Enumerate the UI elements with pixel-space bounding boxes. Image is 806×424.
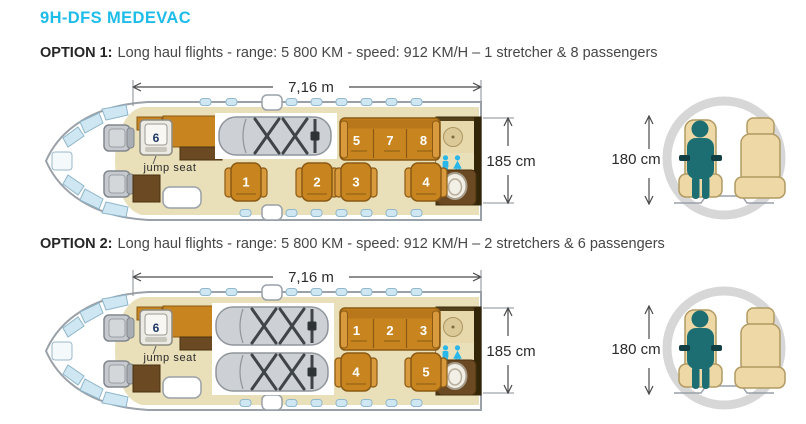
seat-number: 3 [352,175,359,190]
seat-number: 5 [422,365,429,380]
seat-number: 4 [422,175,430,190]
seat-number: 7 [386,133,393,148]
seat-number: 2 [386,323,393,338]
option-2-description: Long haul flights - range: 5 800 KM - sp… [118,236,665,252]
cabin-height-dimension-label: 185 cm [486,343,535,360]
cross-section-height-label: 180 cm [611,151,660,168]
option-2-heading: OPTION 2:Long haul flights - range: 5 80… [40,236,665,252]
medevac-configuration-diagram: 9H-DFS MEDEVAC OPTION 1:Long haul flight… [0,0,806,424]
stretcher [215,113,337,159]
aircraft-floorplan-option-1: 1 2 3 4 5 7 8 6 jump seat 7,16 m 185 cm [30,72,560,227]
seat-number: 8 [420,133,427,148]
fuselage-cross-section [645,101,785,215]
option-1-description: Long haul flights - range: 5 800 KM - sp… [118,45,658,61]
jump-seat-number: 6 [153,131,160,145]
seat-number: 3 [420,323,427,338]
cross-section-option-2: 180 cm [596,282,801,417]
seat-number: 1 [353,323,360,338]
jump-seat-label: jump seat [142,352,196,364]
fuselage-cross-section [645,291,785,405]
option-1-heading: OPTION 1:Long haul flights - range: 5 80… [40,45,658,61]
option-2-label: OPTION 2: [40,236,113,252]
option-1-label: OPTION 1: [40,45,113,61]
aircraft-floorplan-option-2: 4 5 1 2 3 6 jump seat 7,16 m 185 cm [30,262,560,417]
page-title: 9H-DFS MEDEVAC [40,9,191,28]
seat-number: 5 [353,133,360,148]
jump-seat-label: jump seat [142,162,196,174]
length-dimension-label: 7,16 m [288,269,334,286]
cabin-height-dimension-label: 185 cm [486,153,535,170]
length-dimension-label: 7,16 m [288,79,334,96]
seat-number: 4 [352,365,360,380]
stretcher [212,349,334,395]
jump-seat-number: 6 [153,321,160,335]
cross-section-height-label: 180 cm [611,341,660,358]
cross-section-option-1: 180 cm [596,92,801,227]
stretcher [212,303,334,349]
seat-number: 1 [242,175,249,190]
seat-number: 2 [313,175,320,190]
